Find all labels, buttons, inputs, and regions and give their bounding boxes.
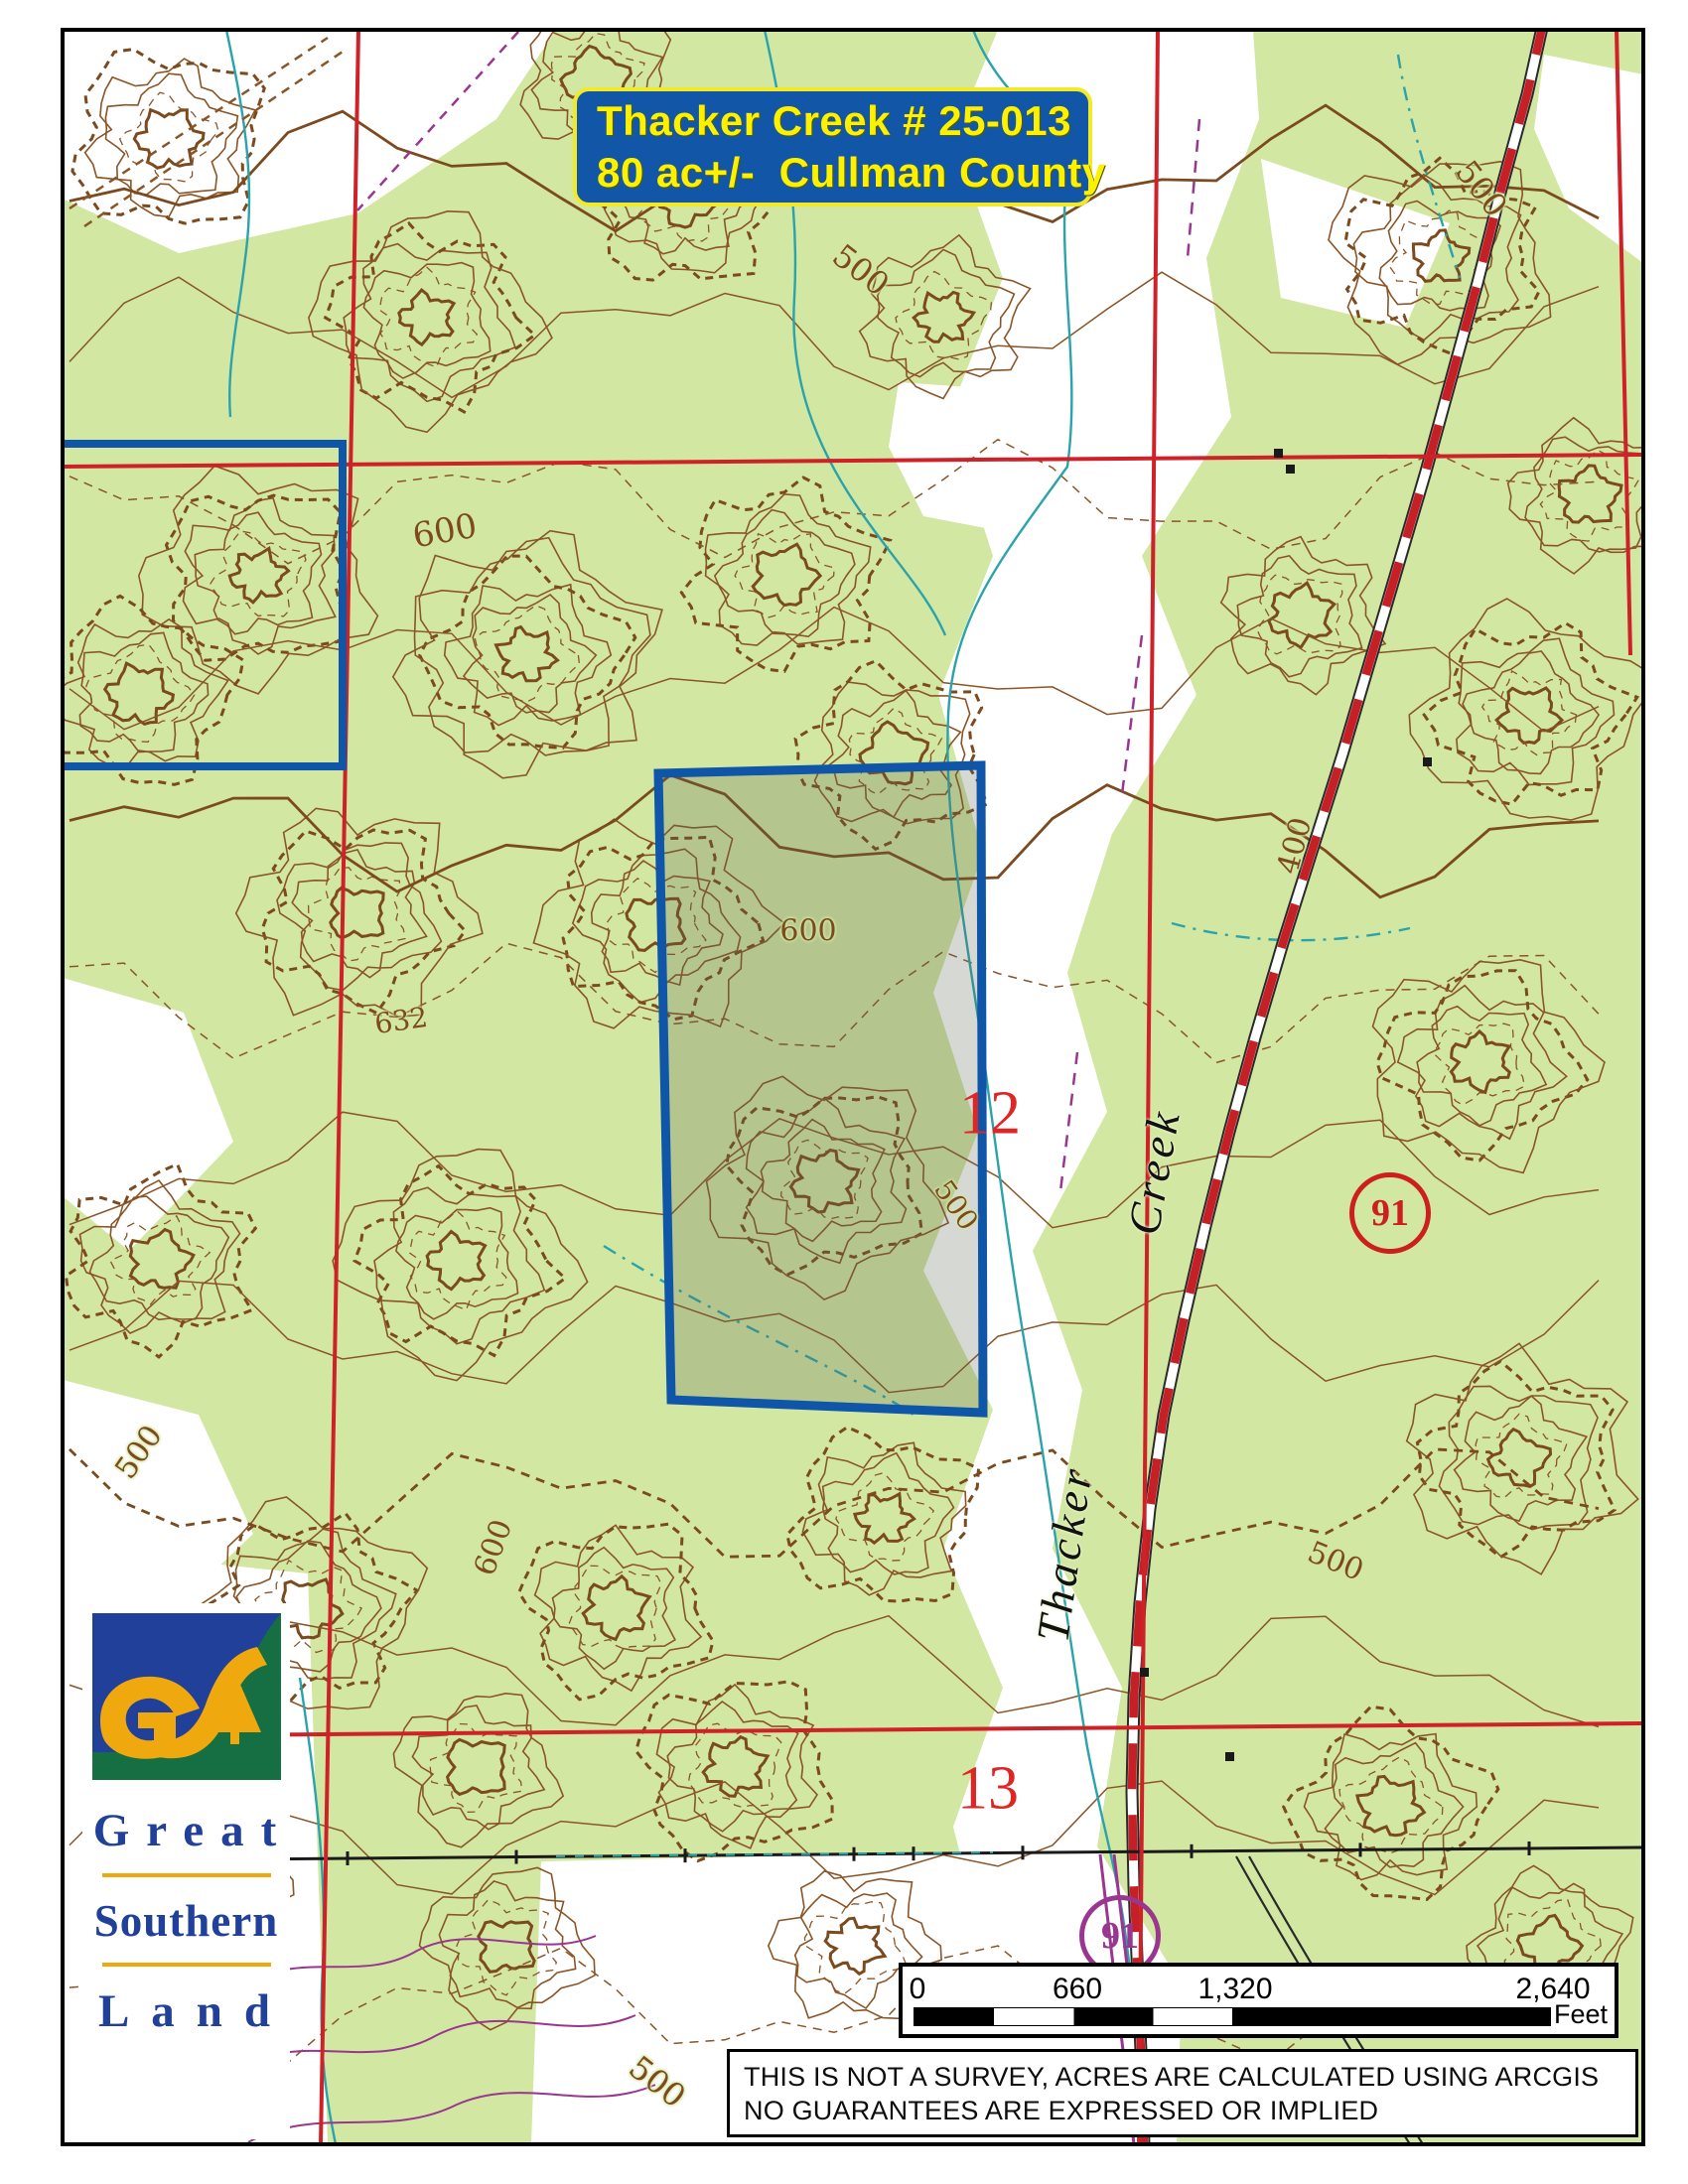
- scale-tick-660: 660: [1053, 1973, 1102, 2006]
- parcel-title-line1: Thacker Creek # 25-013: [597, 95, 1088, 147]
- disclaimer-line1: THIS IS NOT A SURVEY, ACRES ARE CALCULAT…: [744, 2060, 1635, 2094]
- gsl-emblem-icon: [92, 1613, 281, 1780]
- parcel-title-box: Thacker Creek # 25-013 80 ac+/- Cullman …: [573, 87, 1092, 206]
- map-page: 5006005006326004005005006005005001213919…: [0, 0, 1688, 2184]
- gsl-word-land: Land: [98, 1984, 292, 2038]
- scale-bar-box: 06601,3202,640 Feet: [899, 1963, 1618, 2038]
- parcel-title-line2: 80 ac+/- Cullman County: [597, 147, 1088, 199]
- scale-bar-graphic: [914, 2007, 1551, 2026]
- gsl-rule-2: [102, 1963, 271, 1967]
- scale-tick-0: 0: [910, 1973, 926, 2006]
- gsl-rule-1: [102, 1873, 271, 1877]
- gsl-word-great: Great: [93, 1804, 294, 1857]
- gsl-logo: Great Southern Land: [82, 1603, 290, 2139]
- disclaimer-line2: NO GUARANTEES ARE EXPRESSED OR IMPLIED: [744, 2094, 1635, 2127]
- disclaimer-box: THIS IS NOT A SURVEY, ACRES ARE CALCULAT…: [727, 2049, 1638, 2137]
- scale-tick-1,320: 1,320: [1197, 1973, 1272, 2006]
- gsl-word-southern: Southern: [94, 1895, 279, 1947]
- scale-bar-unit: Feet: [1554, 1999, 1608, 2030]
